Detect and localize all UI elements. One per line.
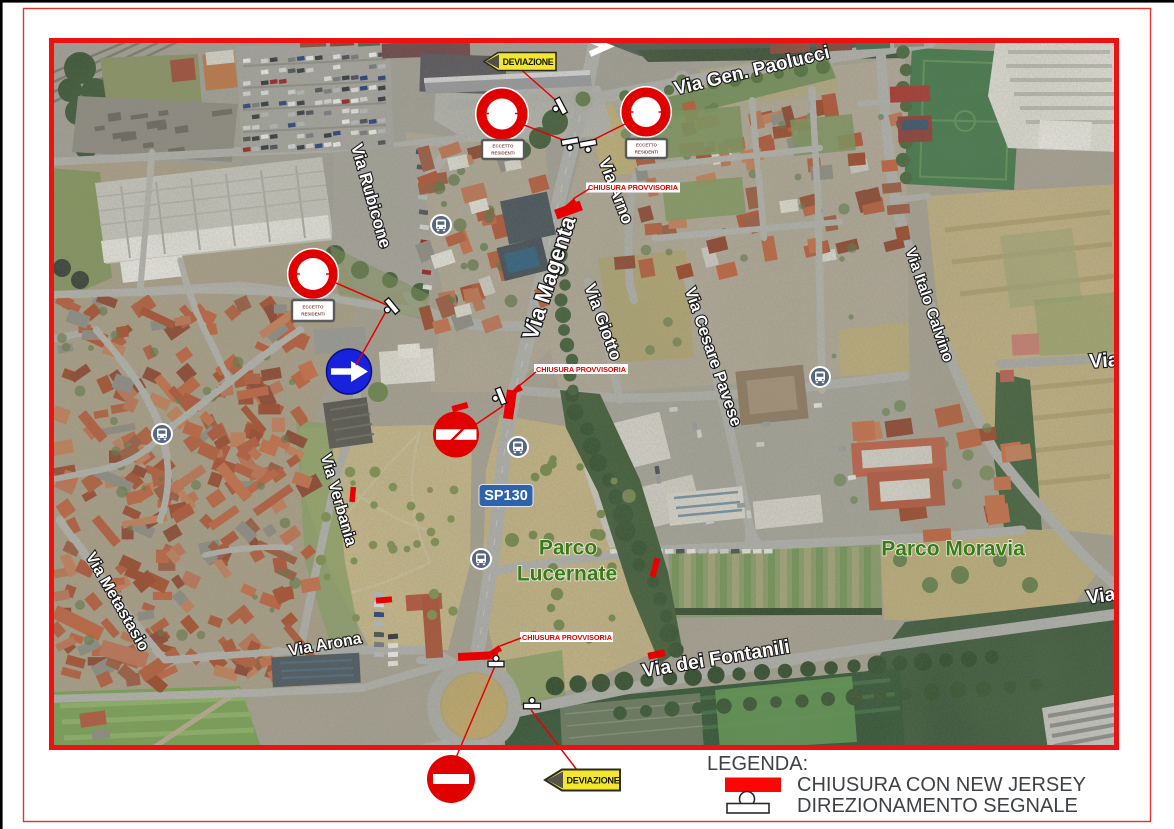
svg-text:ECCETTO: ECCETTO bbox=[493, 144, 514, 149]
svg-text:RESIDENTI: RESIDENTI bbox=[491, 151, 514, 156]
svg-text:CHIUSURA PROVVISORIA: CHIUSURA PROVVISORIA bbox=[588, 183, 679, 192]
svg-text:RESIDENTI: RESIDENTI bbox=[635, 150, 658, 155]
svg-text:RESIDENTI: RESIDENTI bbox=[301, 312, 324, 317]
svg-text:LEGENDA:: LEGENDA: bbox=[707, 753, 808, 775]
svg-text:Parco: Parco bbox=[539, 537, 597, 560]
svg-text:CHIUSURA CON NEW JERSEY: CHIUSURA CON NEW JERSEY bbox=[797, 774, 1086, 796]
svg-text:SP130: SP130 bbox=[484, 488, 528, 504]
svg-text:ECCETTO: ECCETTO bbox=[303, 305, 324, 310]
svg-text:CHIUSURA PROVVISORIA: CHIUSURA PROVVISORIA bbox=[536, 365, 627, 374]
svg-text:Via: Via bbox=[1085, 583, 1117, 609]
svg-text:DEVIAZIONE: DEVIAZIONE bbox=[566, 776, 619, 786]
svg-text:CHIUSURA PROVVISORIA: CHIUSURA PROVVISORIA bbox=[522, 633, 613, 642]
svg-text:DEVIAZIONE: DEVIAZIONE bbox=[503, 57, 554, 67]
svg-text:ECCETTO: ECCETTO bbox=[636, 143, 657, 148]
svg-text:Lucernate: Lucernate bbox=[517, 563, 617, 586]
svg-text:DIREZIONAMENTO SEGNALE: DIREZIONAMENTO SEGNALE bbox=[797, 795, 1078, 817]
svg-text:Parco Moravia: Parco Moravia bbox=[881, 538, 1025, 561]
